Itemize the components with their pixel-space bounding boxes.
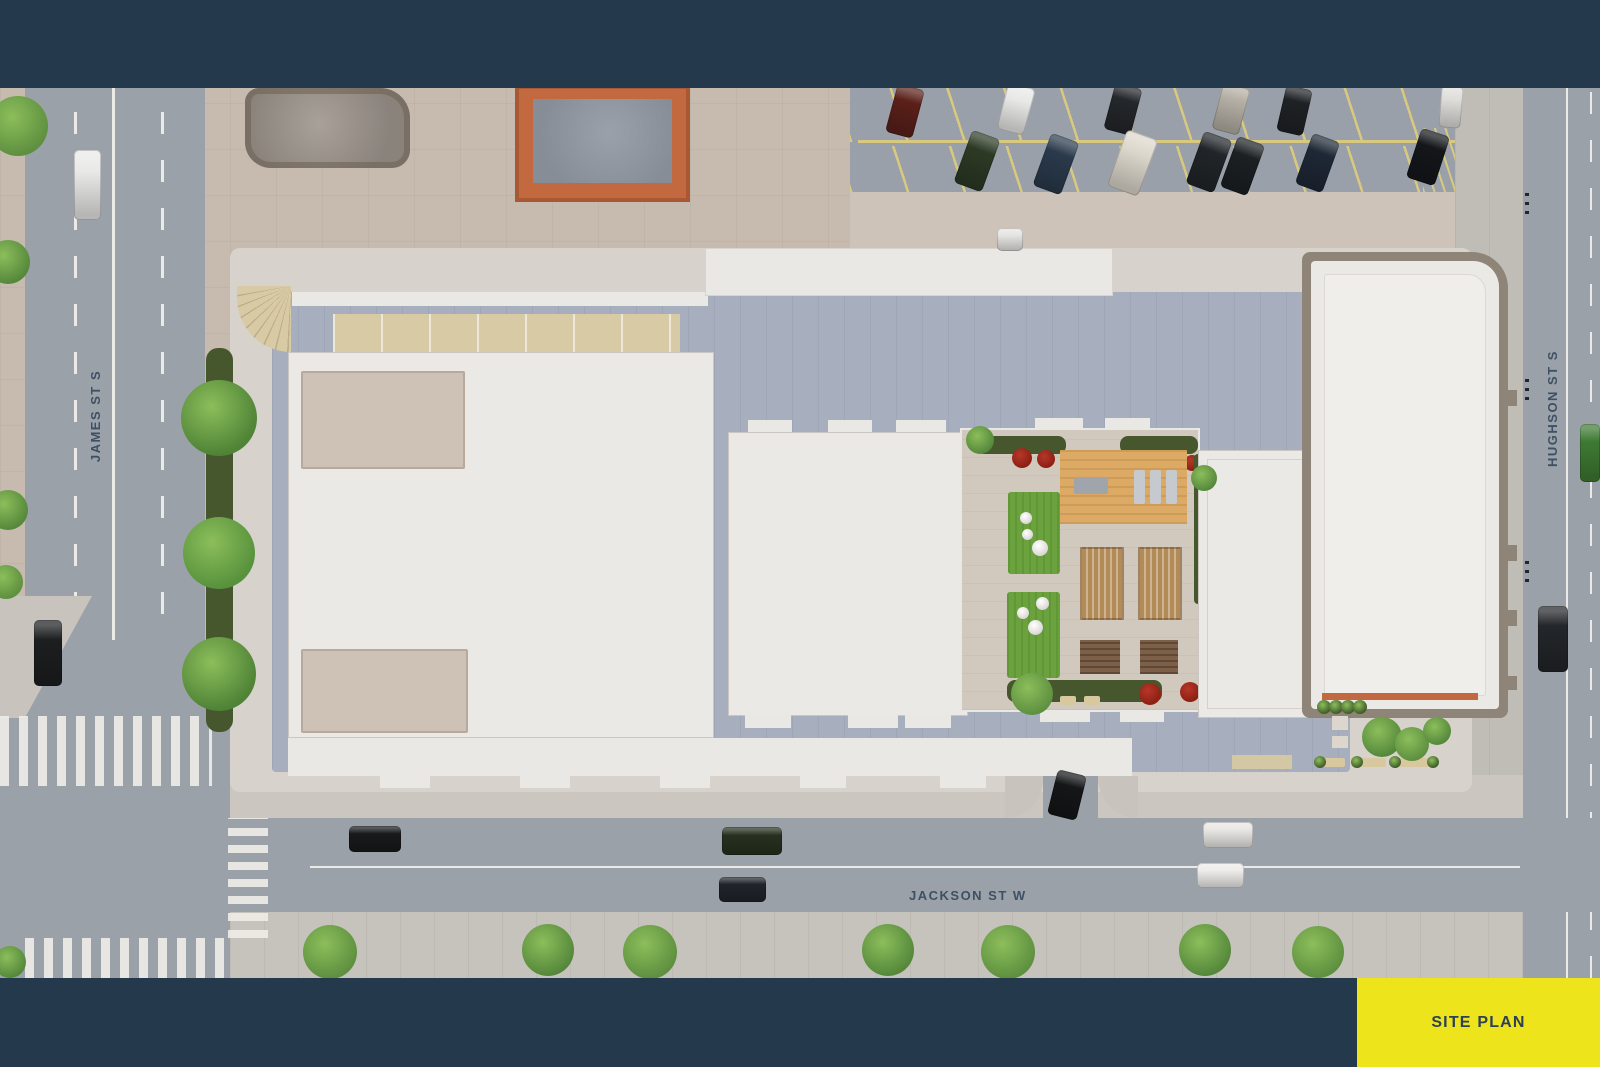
crosswalk-james-south bbox=[25, 938, 232, 978]
parking-stall-lines-bottom bbox=[850, 146, 1470, 192]
red-shrub bbox=[1139, 683, 1161, 705]
building-notch bbox=[1505, 610, 1517, 626]
middle-tower-roof bbox=[728, 432, 968, 716]
red-shrub bbox=[1012, 448, 1032, 468]
south-parapet bbox=[288, 738, 1132, 776]
crosswalk-jackson-west bbox=[228, 818, 268, 938]
balcony-tab bbox=[848, 714, 898, 728]
pergola-west bbox=[1080, 547, 1124, 620]
curbside-dots bbox=[1525, 376, 1529, 400]
east-building-roof-inner bbox=[1324, 274, 1486, 696]
plaza-rock-feature bbox=[245, 88, 410, 168]
lounge-chair bbox=[1134, 470, 1145, 504]
terrace-table bbox=[1074, 478, 1108, 494]
garden-table bbox=[1332, 716, 1348, 730]
terrace-lawn-lower bbox=[1007, 592, 1060, 678]
jackson-center-line bbox=[310, 866, 1520, 868]
driveway bbox=[1043, 776, 1098, 818]
balcony-tab bbox=[1040, 710, 1090, 722]
lawn-boulder bbox=[1028, 620, 1043, 635]
pergola-east bbox=[1138, 547, 1182, 620]
plaza-planter-frame bbox=[515, 85, 690, 202]
east-building bbox=[1302, 252, 1508, 718]
building-notch bbox=[1505, 676, 1517, 690]
podium-tan-strip bbox=[1232, 755, 1292, 769]
planter-box-west bbox=[1080, 640, 1120, 674]
street-label-james: JAMES ST S bbox=[86, 366, 106, 466]
plan-tag-label: SITE PLAN bbox=[1431, 1014, 1525, 1032]
parking-divider-line bbox=[858, 140, 1473, 143]
plan-tag-box: SITE PLAN bbox=[1357, 978, 1600, 1067]
street-label-jackson: JACKSON ST W bbox=[909, 886, 1009, 906]
planter-box-east bbox=[1140, 640, 1178, 674]
parking-stall-lines-top bbox=[850, 88, 1470, 142]
lawn-boulder bbox=[1032, 540, 1048, 556]
james-center-line bbox=[112, 88, 115, 716]
lounge-chair bbox=[1166, 470, 1177, 504]
balcony-tab bbox=[1035, 418, 1083, 430]
terrace-bench bbox=[1084, 696, 1100, 705]
street-hedge-strip bbox=[206, 348, 233, 732]
curbside-dots bbox=[1525, 558, 1529, 582]
north-parapet-center bbox=[705, 248, 1113, 296]
cream-roof-terrace bbox=[333, 314, 680, 352]
james-lane-dash-right bbox=[161, 88, 164, 710]
balcony-tab bbox=[940, 776, 986, 788]
balcony-tab bbox=[660, 776, 710, 788]
red-shrub bbox=[1180, 682, 1200, 702]
street-label-hughson: HUGHSON ST S bbox=[1543, 367, 1563, 467]
rooftop-amenity-terrace bbox=[960, 428, 1200, 712]
balcony-tab bbox=[520, 776, 570, 788]
terrace-bench bbox=[1060, 696, 1076, 705]
awning-strip bbox=[1322, 693, 1478, 700]
balcony-tab bbox=[1105, 418, 1150, 430]
parking-lot bbox=[850, 88, 1500, 192]
lawn-boulder bbox=[1020, 512, 1032, 524]
site-plan-rendering: JAMES ST S HUGHSON ST S JACKSON ST W SIT… bbox=[0, 0, 1600, 1067]
north-parapet-left bbox=[292, 292, 708, 306]
plaza-strip-below-parking bbox=[850, 192, 1500, 256]
header-bar bbox=[0, 0, 1600, 88]
garden-table bbox=[1332, 736, 1348, 748]
red-shrub bbox=[1037, 450, 1055, 468]
west-tower-roof bbox=[288, 352, 714, 738]
jackson-south-sidewalk bbox=[230, 912, 1523, 978]
building-notch bbox=[1505, 390, 1517, 406]
garden-bench bbox=[1352, 758, 1386, 767]
terrace-lawn-upper bbox=[1008, 492, 1060, 574]
building-notch bbox=[1505, 545, 1517, 561]
lawn-boulder bbox=[1036, 597, 1049, 610]
lounge-chair bbox=[1150, 470, 1161, 504]
lawn-boulder bbox=[1022, 529, 1033, 540]
plaza-planter-fill bbox=[533, 99, 672, 183]
crosswalk-james-north bbox=[0, 716, 212, 786]
balcony-tab bbox=[745, 714, 791, 728]
curbside-dots bbox=[1525, 190, 1529, 214]
garden-bench bbox=[1394, 758, 1430, 767]
garden-bench bbox=[1315, 758, 1345, 767]
lawn-boulder bbox=[1017, 607, 1029, 619]
road-jackson-st bbox=[205, 818, 1600, 912]
roof-courtyard-lower bbox=[301, 649, 468, 733]
balcony-tab bbox=[800, 776, 846, 788]
balcony-tab bbox=[380, 776, 430, 788]
balcony-tab bbox=[905, 714, 951, 728]
roof-courtyard-upper bbox=[301, 371, 465, 469]
balcony-tab bbox=[1120, 710, 1164, 722]
